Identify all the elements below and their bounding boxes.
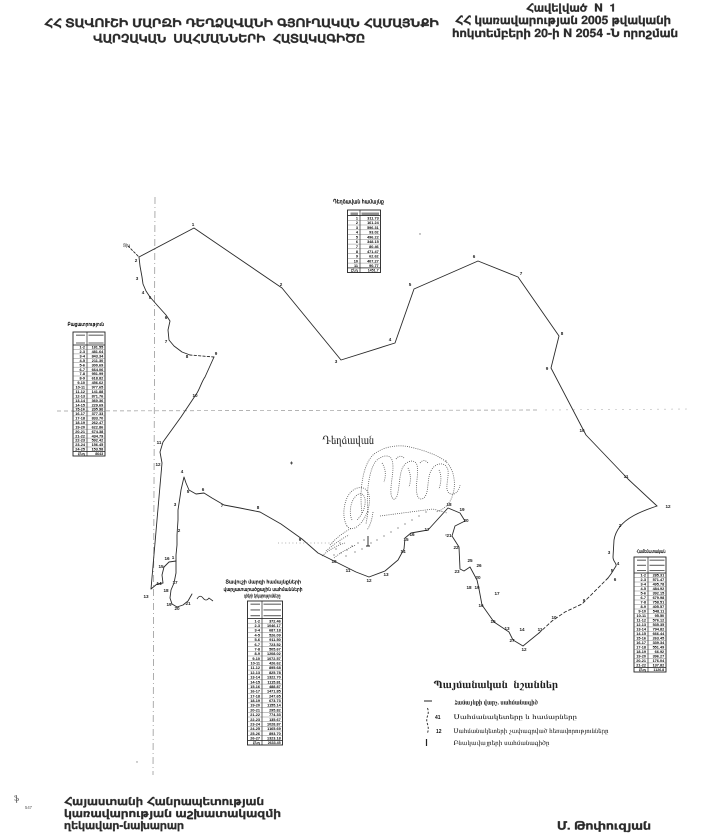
svg-text:19: 19 xyxy=(459,507,465,512)
svg-text:911.50: 911.50 xyxy=(269,638,280,642)
svg-text:2: 2 xyxy=(356,221,358,225)
svg-text:3: 3 xyxy=(136,276,139,281)
svg-text:2-3: 2-3 xyxy=(641,578,647,582)
svg-text:392.15: 392.15 xyxy=(653,592,665,596)
svg-text:10-11: 10-11 xyxy=(75,386,85,390)
svg-text:1451.7: 1451.7 xyxy=(368,268,379,272)
svg-text:2633.45: 2633.45 xyxy=(268,741,281,745)
svg-text:23-24: 23-24 xyxy=(250,723,261,727)
svg-text:1-2: 1-2 xyxy=(80,346,86,350)
svg-text:15: 15 xyxy=(403,537,409,542)
svg-text:311.73: 311.73 xyxy=(367,216,378,220)
svg-text:496.22: 496.22 xyxy=(367,236,379,240)
svg-text:9-10: 9-10 xyxy=(252,657,260,661)
svg-text:8: 8 xyxy=(186,354,189,359)
svg-text:339.34: 339.34 xyxy=(653,641,666,645)
svg-text:4: 4 xyxy=(181,469,184,474)
svg-text:666.44: 666.44 xyxy=(653,632,666,636)
svg-text:4: 4 xyxy=(389,337,392,342)
svg-text:22-23: 22-23 xyxy=(75,439,85,443)
svg-text:9-10: 9-10 xyxy=(77,381,85,385)
svg-text:622.86: 622.86 xyxy=(92,425,104,429)
svg-text:2-3: 2-3 xyxy=(80,350,86,354)
svg-text:348.15: 348.15 xyxy=(367,240,379,244)
svg-text:1115.81: 1115.81 xyxy=(267,680,280,684)
svg-text:618.82: 618.82 xyxy=(92,377,104,381)
svg-text:4-5: 4-5 xyxy=(255,633,261,637)
svg-text:14: 14 xyxy=(519,627,525,632)
svg-text:2-3: 2-3 xyxy=(255,624,261,628)
svg-text:14: 14 xyxy=(400,549,406,554)
svg-text:12: 12 xyxy=(155,462,161,467)
svg-text:11-12: 11-12 xyxy=(75,390,85,394)
svg-text:14-15: 14-15 xyxy=(250,680,260,684)
svg-text:22: 22 xyxy=(453,545,459,550)
svg-text:571.47: 571.47 xyxy=(653,578,665,582)
svg-text:5: 5 xyxy=(356,236,358,240)
svg-text:27: 27 xyxy=(509,638,515,643)
svg-text:7-8: 7-8 xyxy=(255,648,261,652)
svg-text:13: 13 xyxy=(504,626,510,631)
svg-text:7: 7 xyxy=(165,339,168,344)
svg-text:1072.57: 1072.57 xyxy=(267,657,281,661)
svg-text:12: 12 xyxy=(436,729,442,735)
svg-text:2: 2 xyxy=(619,523,622,528)
svg-text:18: 18 xyxy=(466,585,472,590)
svg-text:8: 8 xyxy=(257,505,260,510)
svg-text:12: 12 xyxy=(366,578,372,583)
svg-text:434.79: 434.79 xyxy=(92,434,104,438)
svg-text:15-16: 15-16 xyxy=(250,685,260,689)
svg-text:10: 10 xyxy=(579,428,585,433)
svg-text:Ընդ: Ընդ xyxy=(253,740,261,745)
svg-text:161.24: 161.24 xyxy=(367,221,380,225)
svg-text:7: 7 xyxy=(520,271,523,276)
svg-text:20: 20 xyxy=(463,518,469,523)
svg-text:13-14: 13-14 xyxy=(250,676,261,680)
svg-text:18-19: 18-19 xyxy=(636,650,646,654)
svg-text:377.33: 377.33 xyxy=(92,412,104,416)
svg-text:6: 6 xyxy=(356,240,358,244)
svg-text:26: 26 xyxy=(476,563,482,568)
svg-text:135.67: 135.67 xyxy=(269,718,281,722)
svg-text:6-7: 6-7 xyxy=(255,643,261,647)
svg-text:17: 17 xyxy=(424,527,430,532)
svg-text:13-14: 13-14 xyxy=(636,628,647,632)
svg-text:12: 12 xyxy=(665,504,671,509)
svg-text:10-11: 10-11 xyxy=(250,662,260,666)
svg-text:843.34: 843.34 xyxy=(92,355,105,359)
svg-text:12-13: 12-13 xyxy=(250,671,260,675)
svg-text:7-8: 7-8 xyxy=(80,372,86,376)
svg-text:18: 18 xyxy=(163,588,169,593)
svg-text:9: 9 xyxy=(215,351,218,356)
svg-text:9-10: 9-10 xyxy=(638,610,646,614)
svg-text:Ընդ: Ընդ xyxy=(639,667,647,672)
svg-text:4-5: 4-5 xyxy=(641,587,647,591)
svg-text:3-4: 3-4 xyxy=(255,629,261,633)
svg-text:679.98: 679.98 xyxy=(653,596,665,600)
svg-text:16-17: 16-17 xyxy=(636,641,646,645)
svg-text:12: 12 xyxy=(521,647,527,652)
svg-text:247.65: 247.65 xyxy=(269,694,281,698)
svg-text:285.31: 285.31 xyxy=(653,574,665,578)
svg-text:825.78: 825.78 xyxy=(269,671,281,675)
svg-text:1165.69: 1165.69 xyxy=(267,727,281,731)
svg-text:407.27: 407.27 xyxy=(367,259,379,263)
svg-text:951.99: 951.99 xyxy=(92,372,104,376)
svg-text:15: 15 xyxy=(490,619,496,624)
svg-text:893.70: 893.70 xyxy=(269,732,281,736)
svg-text:8-9: 8-9 xyxy=(80,377,86,381)
svg-text:505.67: 505.67 xyxy=(269,648,281,652)
svg-text:687.18: 687.18 xyxy=(269,629,281,633)
svg-text:576.12: 576.12 xyxy=(653,619,665,623)
svg-text:5-6: 5-6 xyxy=(255,638,261,642)
svg-text:596.31: 596.31 xyxy=(367,226,379,230)
svg-text:14-15: 14-15 xyxy=(75,403,85,407)
svg-text:2: 2 xyxy=(178,528,181,533)
svg-text:10: 10 xyxy=(354,259,358,263)
svg-text:495.78: 495.78 xyxy=(653,583,665,587)
svg-text:7-8: 7-8 xyxy=(641,601,647,605)
svg-text:9: 9 xyxy=(299,537,302,542)
svg-text:548.11: 548.11 xyxy=(653,610,664,614)
svg-text:794.82: 794.82 xyxy=(653,628,665,632)
svg-text:262.47: 262.47 xyxy=(92,421,104,425)
svg-text:5: 5 xyxy=(149,295,152,300)
svg-text:2: 2 xyxy=(135,258,138,263)
svg-text:15: 15 xyxy=(158,564,164,569)
svg-text:3-4: 3-4 xyxy=(641,583,647,587)
svg-text:6: 6 xyxy=(202,487,205,492)
svg-text:4-5: 4-5 xyxy=(80,359,86,363)
svg-text:176.04: 176.04 xyxy=(653,659,666,663)
svg-text:2: 2 xyxy=(280,282,283,287)
svg-text:871.76: 871.76 xyxy=(92,394,104,398)
svg-text:17-18: 17-18 xyxy=(636,646,646,650)
svg-text:13: 13 xyxy=(143,594,149,599)
svg-text:25-26: 25-26 xyxy=(250,732,260,736)
svg-text:5: 5 xyxy=(611,568,614,573)
svg-text:20: 20 xyxy=(174,606,180,611)
svg-text:17: 17 xyxy=(172,580,178,585)
svg-text:1322.70: 1322.70 xyxy=(267,676,281,680)
svg-text:551.49: 551.49 xyxy=(653,646,665,650)
svg-text:11: 11 xyxy=(157,440,162,445)
svg-text:774.33: 774.33 xyxy=(269,713,281,717)
svg-text:664.06: 664.06 xyxy=(92,368,104,372)
svg-text:8-9: 8-9 xyxy=(641,605,647,609)
svg-text:181.55: 181.55 xyxy=(92,346,104,350)
svg-text:488.87: 488.87 xyxy=(269,685,281,689)
svg-text:1471.85: 1471.85 xyxy=(267,690,281,694)
svg-text:41: 41 xyxy=(435,715,441,721)
svg-text:11: 11 xyxy=(624,474,629,479)
svg-text:21-22: 21-22 xyxy=(250,713,260,717)
svg-text:547: 547 xyxy=(25,805,33,810)
svg-text:396.27: 396.27 xyxy=(653,655,665,659)
svg-text:20-21: 20-21 xyxy=(75,430,85,434)
svg-text:5-6: 5-6 xyxy=(80,363,86,367)
svg-text:3: 3 xyxy=(356,226,358,230)
svg-text:19-20: 19-20 xyxy=(75,425,85,429)
svg-text:6-7: 6-7 xyxy=(641,596,647,600)
svg-text:229.69: 229.69 xyxy=(92,403,104,407)
svg-text:93.02: 93.02 xyxy=(369,231,379,235)
svg-text:16: 16 xyxy=(478,603,484,608)
svg-text:22-23: 22-23 xyxy=(250,718,260,722)
svg-text:14-15: 14-15 xyxy=(636,632,646,636)
svg-text:15-16: 15-16 xyxy=(636,637,646,641)
svg-text:10: 10 xyxy=(331,559,337,564)
svg-text:8: 8 xyxy=(561,331,564,336)
svg-text:17-18: 17-18 xyxy=(250,694,260,698)
svg-text:23: 23 xyxy=(454,569,460,574)
svg-text:21-22: 21-22 xyxy=(75,434,85,438)
svg-text:19-20: 19-20 xyxy=(250,704,260,708)
svg-text:18-19: 18-19 xyxy=(250,699,260,703)
svg-text:19: 19 xyxy=(166,602,172,607)
svg-text:456.62: 456.62 xyxy=(92,381,104,385)
svg-text:6: 6 xyxy=(614,577,617,582)
svg-text:14: 14 xyxy=(156,581,162,586)
svg-text:211.30: 211.30 xyxy=(92,359,103,363)
svg-text:16-17: 16-17 xyxy=(250,690,260,694)
svg-text:1155.14: 1155.14 xyxy=(267,704,281,708)
svg-text:1-2: 1-2 xyxy=(641,574,647,578)
svg-text:25: 25 xyxy=(467,558,473,563)
svg-text:674.38: 674.38 xyxy=(92,430,104,434)
svg-text:6: 6 xyxy=(165,315,168,320)
svg-text:10: 10 xyxy=(192,393,198,398)
svg-text:526.09: 526.09 xyxy=(269,633,281,637)
svg-text:141.88: 141.88 xyxy=(92,390,104,394)
svg-text:405.57: 405.57 xyxy=(653,605,665,609)
svg-text:4: 4 xyxy=(356,231,359,235)
svg-text:Ընդ: Ընդ xyxy=(78,451,86,456)
svg-text:4: 4 xyxy=(617,561,620,566)
svg-text:16: 16 xyxy=(164,556,170,561)
svg-text:1: 1 xyxy=(172,555,175,560)
svg-text:1126.8: 1126.8 xyxy=(653,668,664,672)
svg-text:295.82: 295.82 xyxy=(269,708,281,712)
svg-text:471.47: 471.47 xyxy=(367,250,379,254)
svg-text:18: 18 xyxy=(446,502,452,507)
svg-text:11: 11 xyxy=(346,568,351,573)
svg-text:9: 9 xyxy=(583,598,586,603)
svg-text:6: 6 xyxy=(473,254,476,259)
svg-text:263.45: 263.45 xyxy=(653,637,665,641)
svg-text:8643: 8643 xyxy=(95,452,103,456)
svg-text:5: 5 xyxy=(409,282,412,287)
svg-text:24-25: 24-25 xyxy=(250,727,260,731)
svg-text:977.65: 977.65 xyxy=(92,386,104,390)
svg-text:3: 3 xyxy=(608,550,611,555)
svg-text:3-4: 3-4 xyxy=(80,355,86,359)
svg-text:17-18: 17-18 xyxy=(75,417,85,421)
svg-text:481.64: 481.64 xyxy=(92,350,105,354)
svg-text:21: 21 xyxy=(185,601,191,606)
svg-text:18-19: 18-19 xyxy=(75,421,85,425)
svg-text:300.69: 300.69 xyxy=(92,363,104,367)
svg-text:12-13: 12-13 xyxy=(636,623,646,627)
svg-text:535.35: 535.35 xyxy=(653,623,665,627)
svg-text:12-13: 12-13 xyxy=(75,394,85,398)
svg-text:723.52: 723.52 xyxy=(269,643,281,647)
svg-text:1: 1 xyxy=(192,222,195,227)
svg-text:10-11: 10-11 xyxy=(636,614,646,618)
svg-text:1028.87: 1028.87 xyxy=(267,723,281,727)
svg-text:9: 9 xyxy=(356,255,358,259)
svg-text:21: 21 xyxy=(446,533,452,538)
svg-text:5: 5 xyxy=(187,489,190,494)
svg-text:Ընդ: Ընդ xyxy=(351,267,359,272)
svg-text:62.62: 62.62 xyxy=(369,255,379,259)
svg-text:484.92: 484.92 xyxy=(653,587,665,591)
svg-text:20-21: 20-21 xyxy=(250,708,260,712)
svg-text:11: 11 xyxy=(538,627,543,632)
svg-text:19-20: 19-20 xyxy=(636,655,646,659)
svg-text:5-6: 5-6 xyxy=(641,592,647,596)
svg-text:20: 20 xyxy=(475,575,481,580)
svg-text:80.46: 80.46 xyxy=(369,245,379,249)
svg-text:4: 4 xyxy=(142,290,145,295)
svg-text:13-14: 13-14 xyxy=(75,399,86,403)
svg-text:13: 13 xyxy=(383,572,389,577)
svg-text:592.42: 592.42 xyxy=(92,439,104,443)
svg-text:16-17: 16-17 xyxy=(75,412,85,416)
svg-text:16: 16 xyxy=(409,532,415,537)
svg-text:6-7: 6-7 xyxy=(80,368,86,372)
svg-text:426.62: 426.62 xyxy=(269,662,281,666)
svg-text:3: 3 xyxy=(335,359,338,364)
svg-text:372.46: 372.46 xyxy=(269,619,281,623)
svg-text:19: 19 xyxy=(474,585,480,590)
svg-text:3: 3 xyxy=(174,502,177,507)
svg-text:1-2: 1-2 xyxy=(255,619,261,623)
svg-text:156.45: 156.45 xyxy=(92,443,104,447)
svg-text:23-24: 23-24 xyxy=(75,443,86,447)
svg-text:895.68: 895.68 xyxy=(269,666,281,670)
svg-text:1: 1 xyxy=(356,216,358,220)
svg-text:1208.02: 1208.02 xyxy=(267,652,281,656)
svg-text:1046.17: 1046.17 xyxy=(267,624,281,628)
svg-text:7: 7 xyxy=(221,503,224,508)
svg-text:95.50: 95.50 xyxy=(655,614,665,618)
svg-text:17: 17 xyxy=(494,591,500,596)
svg-text:8: 8 xyxy=(356,250,358,254)
svg-text:11-12: 11-12 xyxy=(250,666,260,670)
svg-text:833.70: 833.70 xyxy=(92,417,104,421)
svg-text:360.36: 360.36 xyxy=(92,399,104,403)
svg-text:10: 10 xyxy=(551,615,557,620)
svg-text:8-9: 8-9 xyxy=(255,652,261,656)
svg-text:7: 7 xyxy=(356,245,358,249)
svg-text:66.92: 66.92 xyxy=(655,650,665,654)
svg-text:11-12: 11-12 xyxy=(636,619,646,623)
svg-text:20-21: 20-21 xyxy=(636,659,646,663)
svg-text:758.51: 758.51 xyxy=(653,601,665,605)
svg-text:205.90: 205.90 xyxy=(92,408,104,412)
svg-text:9: 9 xyxy=(546,366,549,371)
svg-text:673.73: 673.73 xyxy=(269,699,281,703)
svg-text:15-16: 15-16 xyxy=(75,408,85,412)
